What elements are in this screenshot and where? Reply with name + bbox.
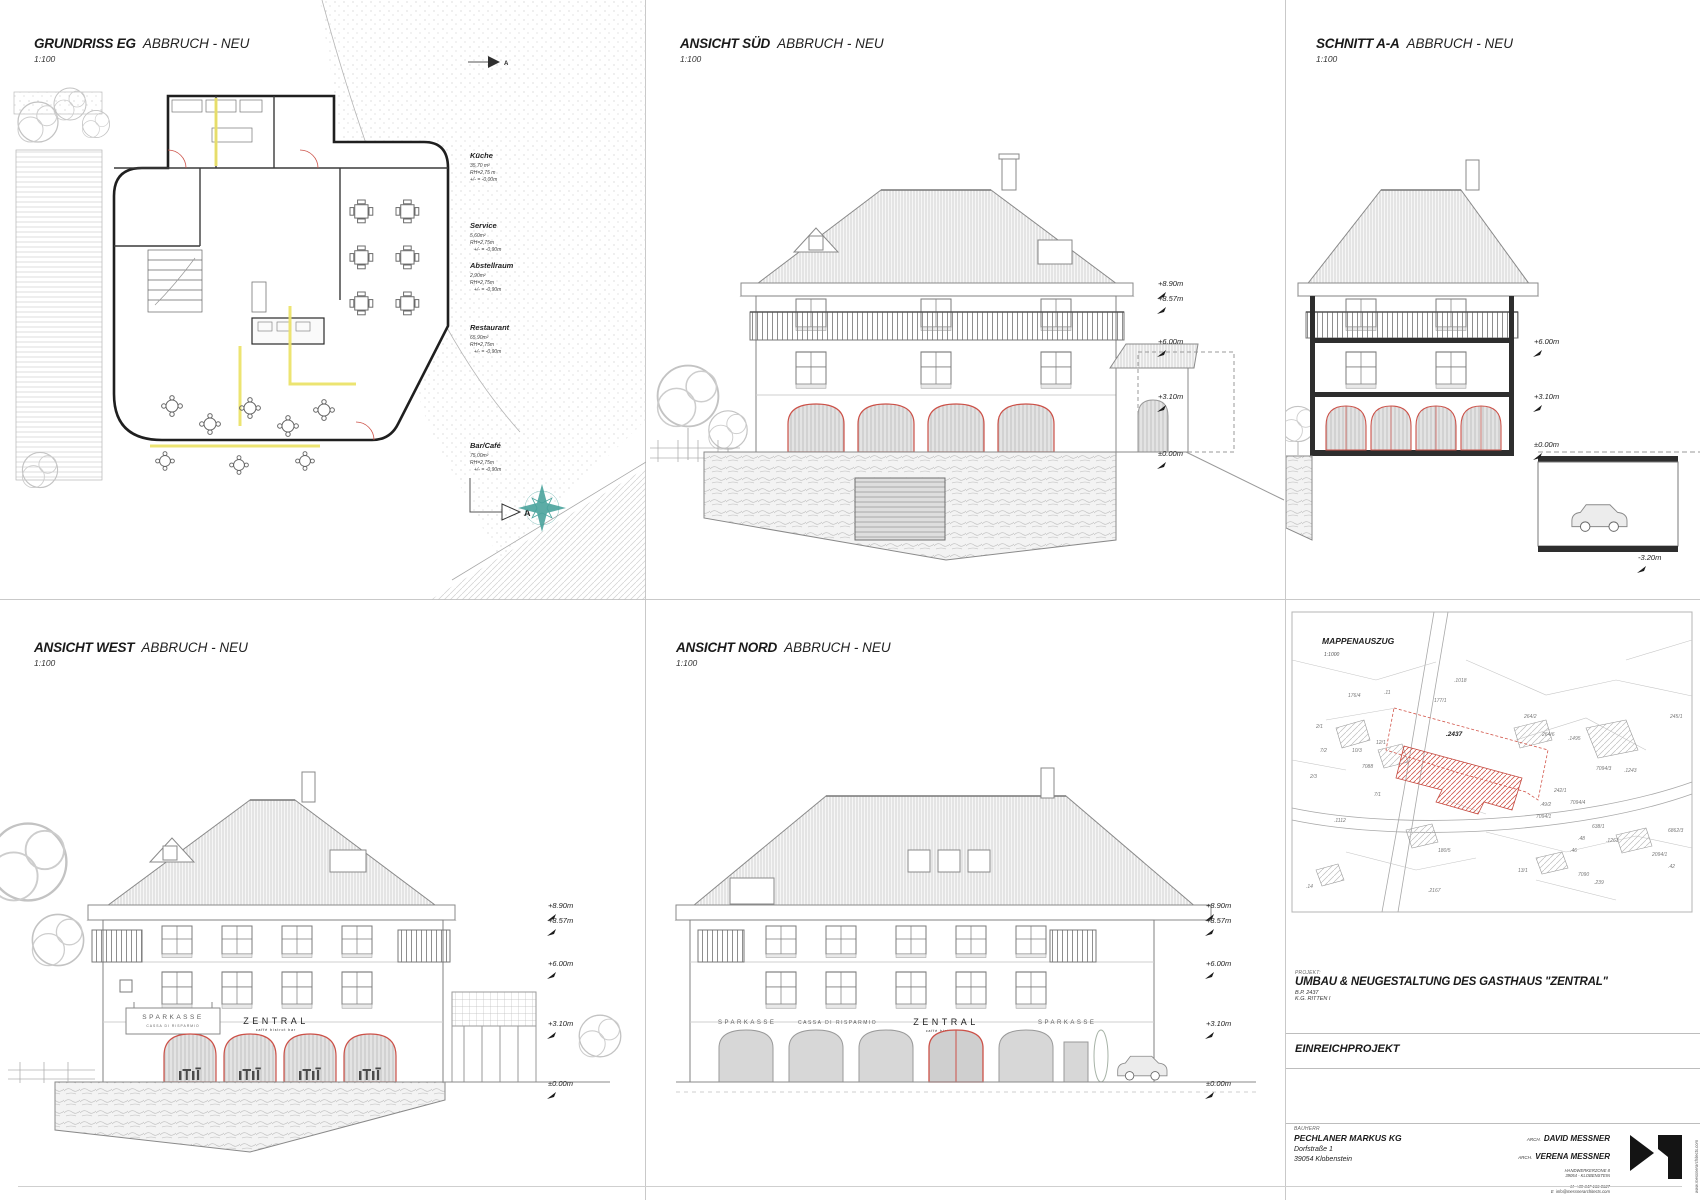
svg-text:12/1: 12/1 [1376,740,1386,746]
svg-text:RH=2,75m: RH=2,75m [470,460,494,466]
sheet-bottom-edge [18,1186,1682,1187]
plan-info-table: PLAN ER-02 PLANINHALT Grundriss, Ansicht… [1286,1068,1700,1123]
title-phase: ABBRUCH - NEU [784,640,891,655]
svg-text:177/1: 177/1 [1434,698,1447,704]
phase-label: EINREICHPROJEKT [1295,1043,1700,1055]
panel-scale: 1:100 [1316,54,1337,64]
basement-garage [1286,452,1700,552]
bauherr-address-1: Dorfstraße 1 [1294,1146,1333,1153]
panel-title-grundriss: GRUNDRISS EGABBRUCH - NEU [34,36,249,51]
level-annotations: +8.90m +8.57m +6.00m +3.10m ±0.00m [547,901,573,1099]
svg-text:.1018: .1018 [1454,678,1467,684]
svg-text:+3.10m: +3.10m [1534,392,1559,401]
panel-scale: 1:100 [680,54,701,64]
title-text: ANSICHT SÜD [680,36,770,51]
title-text: ANSICHT WEST [34,640,134,655]
svg-text:7094/3: 7094/3 [1596,766,1612,772]
bauherr-label: BAUHERR [1294,1126,1320,1132]
svg-text:±0.00m: ±0.00m [1158,449,1183,458]
svg-text:.1112: .1112 [1334,818,1346,824]
divider [1286,1033,1700,1034]
panel-ansicht-nord: ANSICHT NORDABBRUCH - NEU 1:100 SPARKASS… [646,600,1286,1200]
svg-text:7088: 7088 [1362,764,1373,770]
panel-scale: 1:100 [34,54,55,64]
svg-text:+3.10m: +3.10m [548,1019,573,1028]
svg-text:+6.00m: +6.00m [1158,337,1183,346]
svg-text:.11: .11 [1384,690,1391,696]
arch-name-1: DAVID MESSNER [1544,1134,1610,1143]
svg-text:ZENTRAL: ZENTRAL [243,1016,309,1026]
svg-text:.1243: .1243 [1624,768,1637,774]
floorplan-drawing: Küche 35,70 m² RH=2,75 m +/- = -0,00m Se… [0,0,646,600]
svg-text:+/- = -0,90m: +/- = -0,90m [474,467,501,473]
svg-text:SPARKASSE: SPARKASSE [1038,1020,1096,1026]
svg-text:RH=2,75m: RH=2,75m [470,240,494,246]
roof [676,768,1211,920]
svg-text:6862/3: 6862/3 [1668,828,1684,834]
svg-text:1:1000: 1:1000 [1324,652,1340,658]
drawing-sheet: GRUNDRISS EGABBRUCH - NEU 1:100 [0,0,1700,1200]
svg-text:ZENTRAL: ZENTRAL [913,1017,979,1027]
svg-text:7/2: 7/2 [1320,748,1327,754]
panel-title-sued: ANSICHT SÜDABBRUCH - NEU [680,36,884,51]
arch-label-1: ARCH. [1527,1137,1541,1142]
title-text: GRUNDRISS EG [34,36,136,51]
panel-ansicht-sued: ANSICHT SÜDABBRUCH - NEU 1:100 [646,0,1286,600]
svg-text:.46: .46 [1570,848,1577,854]
svg-text:65,90m²: 65,90m² [470,335,489,341]
garden-terrace [14,88,110,488]
svg-text:+8.90m: +8.90m [1206,901,1231,910]
svg-text:180/5: 180/5 [1438,848,1451,854]
title-block: MAPPENAUSZUG 1:1000 .2437 176/4 .11 .101… [1286,600,1700,1200]
project-block: PROJEKT: UMBAU & NEUGESTALTUNG DES GASTH… [1295,970,1700,1002]
panel-scale: 1:100 [34,658,55,668]
svg-text:2/1: 2/1 [1315,724,1323,730]
svg-text:+8.90m: +8.90m [1158,279,1183,288]
title-phase: ABBRUCH - NEU [1407,36,1514,51]
panel-title-schnitt: SCHNITT A-AABBRUCH - NEU [1316,36,1513,51]
panel-ansicht-west: ANSICHT WESTABBRUCH - NEU 1:100 [0,600,646,1200]
svg-text:RH=2,75m: RH=2,75m [470,280,494,286]
svg-text:75,00m²: 75,00m² [470,453,489,459]
svg-text:.1263: .1263 [1606,838,1619,844]
panel-title-nord: ANSICHT NORDABBRUCH - NEU [676,640,891,655]
svg-text:Service: Service [470,221,497,230]
svg-text:.42: .42 [1668,864,1675,870]
svg-text:±0.00m: ±0.00m [1206,1079,1231,1088]
svg-text:SPARKASSE: SPARKASSE [718,1020,776,1026]
svg-text:.1495: .1495 [1568,736,1581,742]
trees [650,366,747,464]
title-phase: ABBRUCH - NEU [777,36,884,51]
north-elevation-drawing: SPARKASSE CASSA DI RISPARMIO ZENTRAL caf… [646,600,1286,1200]
svg-text:638/1: 638/1 [1592,824,1605,830]
svg-text:264/2: 264/2 [1523,714,1537,720]
svg-text:+3.10m: +3.10m [1158,392,1183,401]
svg-text:264/6: 264/6 [1541,732,1555,738]
arch-address-2: 39054 - KLOBENSTEIN [1518,1173,1610,1178]
arch-name-2: VERENA MESSNER [1535,1152,1610,1161]
svg-text:2094/1: 2094/1 [1651,852,1668,858]
svg-text:RH=2,75 m: RH=2,75 m [470,170,495,176]
cadastral-map: MAPPENAUSZUG 1:1000 .2437 176/4 .11 .101… [1286,600,1700,915]
panel-schnitt: SCHNITT A-AABBRUCH - NEU 1:100 [1286,0,1700,600]
svg-text:+3.10m: +3.10m [1206,1019,1231,1028]
svg-text:7/1: 7/1 [1374,792,1381,798]
svg-text:+/- = -0,90m: +/- = -0,90m [474,349,501,355]
svg-text:.48: .48 [1578,836,1585,842]
svg-text:Bar/Café: Bar/Café [470,441,501,450]
contact-email: info@messnerarchitects.com [1556,1189,1610,1194]
contact-e-label: E [1551,1189,1554,1194]
svg-text:-3.20m: -3.20m [1638,553,1661,562]
svg-text:Abstellraum: Abstellraum [469,261,514,270]
svg-text:245/1: 245/1 [1669,714,1683,720]
svg-text:+8.57m: +8.57m [548,916,573,925]
title-text: ANSICHT NORD [676,640,777,655]
svg-text:.49/2: .49/2 [1540,802,1551,808]
svg-text:+8.90m: +8.90m [548,901,573,910]
projekt-kg: K.G. RITTEN I [1295,996,1700,1002]
svg-text:.2437: .2437 [1446,731,1463,738]
panel-title-west: ANSICHT WESTABBRUCH - NEU [34,640,248,655]
svg-text:13/1: 13/1 [1518,868,1528,874]
svg-text:7094/4: 7094/4 [1570,800,1586,806]
svg-text:+6.00m: +6.00m [1534,337,1559,346]
svg-text:176/4: 176/4 [1348,693,1361,699]
svg-text:.239: .239 [1594,880,1604,886]
svg-text:±0.00m: ±0.00m [548,1079,573,1088]
svg-text:+/- = -0,90m: +/- = -0,90m [474,287,501,293]
level-annotations: +8.90m +8.57m +6.00m +3.10m ±0.00m [1205,901,1231,1099]
roof [1298,160,1538,296]
svg-text:RH=2,75m: RH=2,75m [470,342,494,348]
svg-text:±0.00m: ±0.00m [1534,440,1559,449]
roof [88,772,455,920]
svg-text:+6.00m: +6.00m [548,959,573,968]
svg-text:Restaurant: Restaurant [470,323,510,332]
svg-text:CASSA DI RISPARMIO: CASSA DI RISPARMIO [798,1020,877,1026]
svg-text:2/3: 2/3 [1309,774,1317,780]
svg-text:Küche: Küche [470,151,493,160]
svg-text:+8.57m: +8.57m [1206,916,1231,925]
svg-text:242/1: 242/1 [1553,788,1567,794]
svg-text:+/- = -0,90m: +/- = -0,90m [474,247,501,253]
svg-text:7094/1: 7094/1 [1536,814,1552,820]
title-phase: ABBRUCH - NEU [141,640,248,655]
svg-text:MAPPENAUSZUG: MAPPENAUSZUG [1322,636,1395,646]
signature-row: BAUHERR PECHLANER MARKUS KG Dorfstraße 1… [1286,1123,1700,1200]
architects-logo [1628,1133,1686,1183]
building-plan [114,96,448,474]
roof [741,154,1133,296]
svg-text:10/3: 10/3 [1352,748,1362,754]
title-text: SCHNITT A-A [1316,36,1400,51]
website-vertical-text: www.messnerarchitects.com [1694,1140,1699,1193]
svg-text:2,90m²: 2,90m² [469,273,486,279]
svg-text:+8.57m: +8.57m [1158,294,1183,303]
svg-text:+/- = -0,00m: +/- = -0,00m [470,177,497,183]
svg-text:5,60m²: 5,60m² [470,233,486,239]
svg-text:.14: .14 [1306,884,1313,890]
svg-text:caffè bistrot bar: caffè bistrot bar [256,1028,296,1032]
architect-block: ARCH.DAVID MESSNER ARCH.VERENA MESSNER H… [1518,1128,1610,1194]
svg-text:7090: 7090 [1578,872,1589,878]
projekt-title: UMBAU & NEUGESTALTUNG DES GASTHAUS "ZENT… [1295,976,1700,988]
title-phase: ABBRUCH - NEU [143,36,250,51]
svg-text:CASSA DI RISPARMIO: CASSA DI RISPARMIO [146,1024,199,1028]
base-wall [704,452,1284,560]
arch-label-2: ARCH. [1518,1155,1532,1160]
section-drawing: +6.00m +3.10m ±0.00m -3.20m [1286,0,1700,600]
svg-text:35,70 m²: 35,70 m² [470,163,490,169]
bauherr-name: PECHLANER MARKUS KG [1294,1133,1402,1143]
panel-grundriss: GRUNDRISS EGABBRUCH - NEU 1:100 [0,0,646,600]
west-elevation-drawing: SPARKASSE CASSA DI RISPARMIO ZENTRAL caf… [0,600,646,1200]
bauherr-address-2: 39054 Klobenstein [1294,1156,1352,1163]
svg-text:.2167: .2167 [1428,888,1441,894]
pergola [452,992,536,1082]
svg-text:+6.00m: +6.00m [1206,959,1231,968]
svg-text:A: A [504,61,509,67]
south-elevation-drawing: +8.90m +8.57m +6.00m +3.10m ±0.00m [646,0,1286,600]
svg-text:SPARKASSE: SPARKASSE [142,1014,203,1021]
panel-scale: 1:100 [676,658,697,668]
